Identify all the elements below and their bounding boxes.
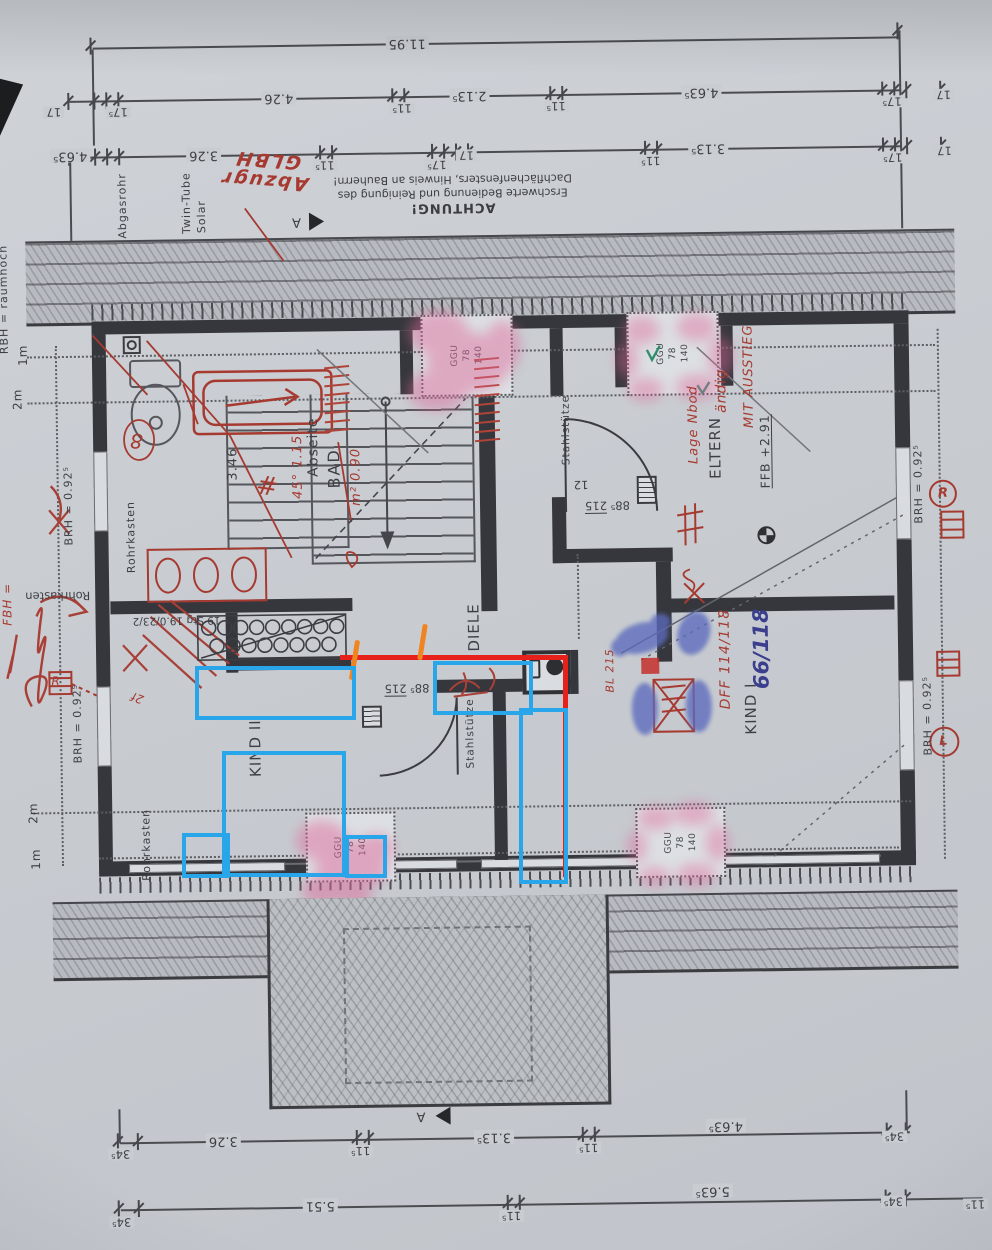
- digital-blue-rect-5: [345, 835, 387, 878]
- digital-blue-rect-2: [433, 661, 533, 715]
- digital-blue-rect-3: [222, 751, 346, 877]
- digital-annotation-layer: [0, 0, 992, 1250]
- digital-red-line-horizontal: [340, 655, 568, 660]
- digital-blue-rect-4: [519, 708, 568, 884]
- floorplan-photo: 11.95 17 17⁵ 4.26 11⁵ 2.13⁵ 11⁵ 4.63⁵ 17…: [0, 0, 992, 1250]
- digital-blue-rect-1: [195, 666, 356, 720]
- digital-blue-rect-6: [182, 833, 230, 878]
